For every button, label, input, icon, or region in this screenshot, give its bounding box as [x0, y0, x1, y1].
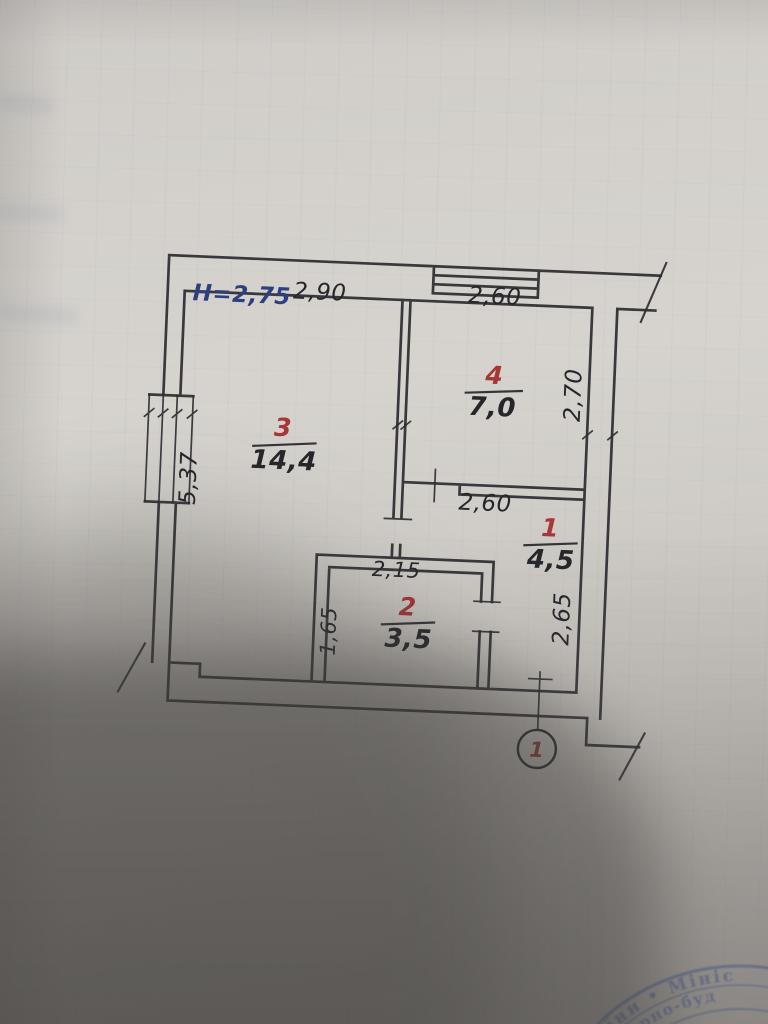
room-4-area: 7,0 — [468, 392, 517, 424]
room-1-area: 4,5 — [525, 544, 575, 576]
dim-room2-width: 2,15 — [371, 557, 421, 583]
dim-right-265: 2,65 — [548, 592, 576, 646]
dim-top-260: 2,60 — [468, 283, 522, 311]
camera-shadow-core — [0, 655, 660, 1024]
room-4-number: 4 — [484, 360, 504, 390]
floor-plan-photo: H=2,75 2,90 2,60 2,70 5,37 2,60 2,15 1,6… — [0, 0, 768, 1024]
room-3-area: 14,4 — [250, 445, 317, 478]
dim-mid-260: 2,60 — [458, 489, 512, 517]
dim-top-290: 2,90 — [293, 278, 347, 306]
room-3-number: 3 — [274, 413, 293, 443]
dim-right-270: 2,70 — [560, 368, 588, 422]
room-1-number: 1 — [541, 513, 560, 543]
dim-left-537: 5,37 — [175, 451, 203, 505]
height-note: H=2,75 — [192, 280, 291, 310]
room-2-number: 2 — [398, 592, 417, 622]
